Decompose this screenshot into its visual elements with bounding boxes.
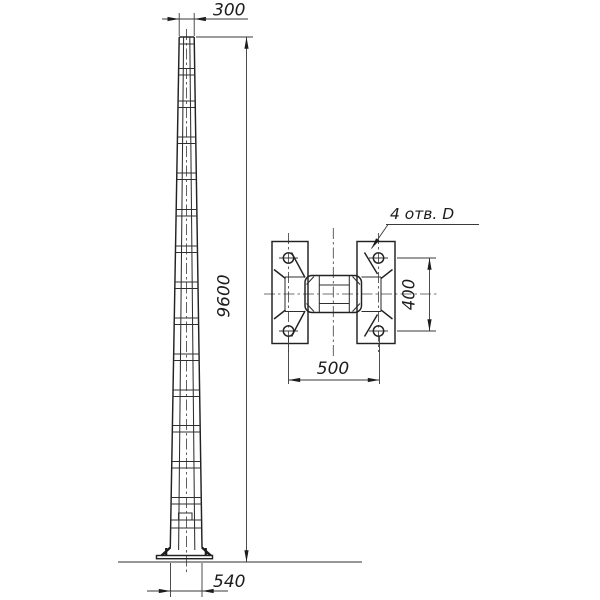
dim-arrow [194, 17, 206, 21]
dim-arrow [289, 378, 301, 382]
dim-pole-height: 9600 [215, 274, 235, 317]
dimension-base-width: 540 [147, 563, 245, 597]
dim-arrow [159, 589, 171, 593]
dim-arrow [427, 319, 431, 331]
anchor-plate-right [357, 242, 395, 344]
drawing-sheet: 300 9600 540 [0, 0, 600, 600]
technical-drawing-canvas: 300 9600 540 [0, 0, 600, 600]
dim-arrow [427, 258, 431, 270]
pole-outline-right [194, 37, 211, 556]
base-plate [157, 556, 213, 559]
dim-bolt-spacing-horizontal: 500 [317, 359, 349, 379]
base-gusset-right [202, 548, 210, 556]
dim-arrow [202, 589, 214, 593]
dim-base-width: 540 [213, 572, 245, 592]
dim-arrow [368, 378, 380, 382]
dim-arrow [244, 37, 248, 49]
pole-elevation-view: 300 9600 540 [118, 1, 362, 598]
flange-plan-view: 4 отв. D 400 500 [264, 205, 479, 384]
pole-outline-left [161, 37, 179, 556]
dim-arrow [244, 550, 248, 562]
base-hatch-detail [179, 513, 193, 520]
base-gusset-left [162, 548, 170, 556]
dim-bolt-spacing-vertical: 400 [400, 279, 419, 311]
dim-top-width: 300 [213, 1, 245, 21]
dimension-pole-height: 9600 [196, 37, 253, 562]
dimension-bolt-spacing-vertical: 400 [397, 258, 436, 331]
dimension-top-width: 300 [162, 1, 248, 37]
hole-callout-label: 4 отв. D [390, 205, 454, 223]
dim-arrow [168, 17, 180, 21]
anchor-plate-left [272, 242, 308, 344]
